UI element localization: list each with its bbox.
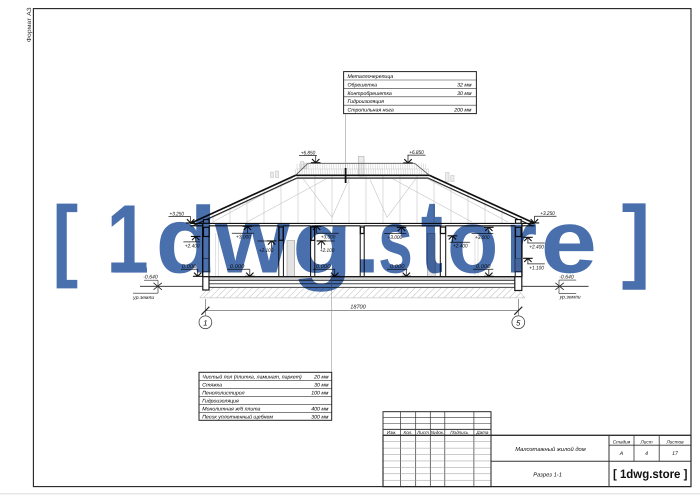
svg-text:o: o: [447, 192, 498, 292]
svg-text:t: t: [421, 178, 443, 295]
svg-text:]: ]: [621, 187, 650, 290]
svg-text:g: g: [292, 194, 352, 292]
svg-text:s: s: [378, 191, 413, 292]
svg-text:.: .: [354, 193, 380, 292]
svg-text:1: 1: [107, 185, 149, 293]
svg-text:r: r: [505, 192, 537, 293]
svg-text:[: [: [52, 188, 78, 289]
svg-text:d: d: [155, 188, 217, 293]
svg-text:w: w: [214, 190, 290, 292]
svg-text:e: e: [541, 192, 597, 292]
